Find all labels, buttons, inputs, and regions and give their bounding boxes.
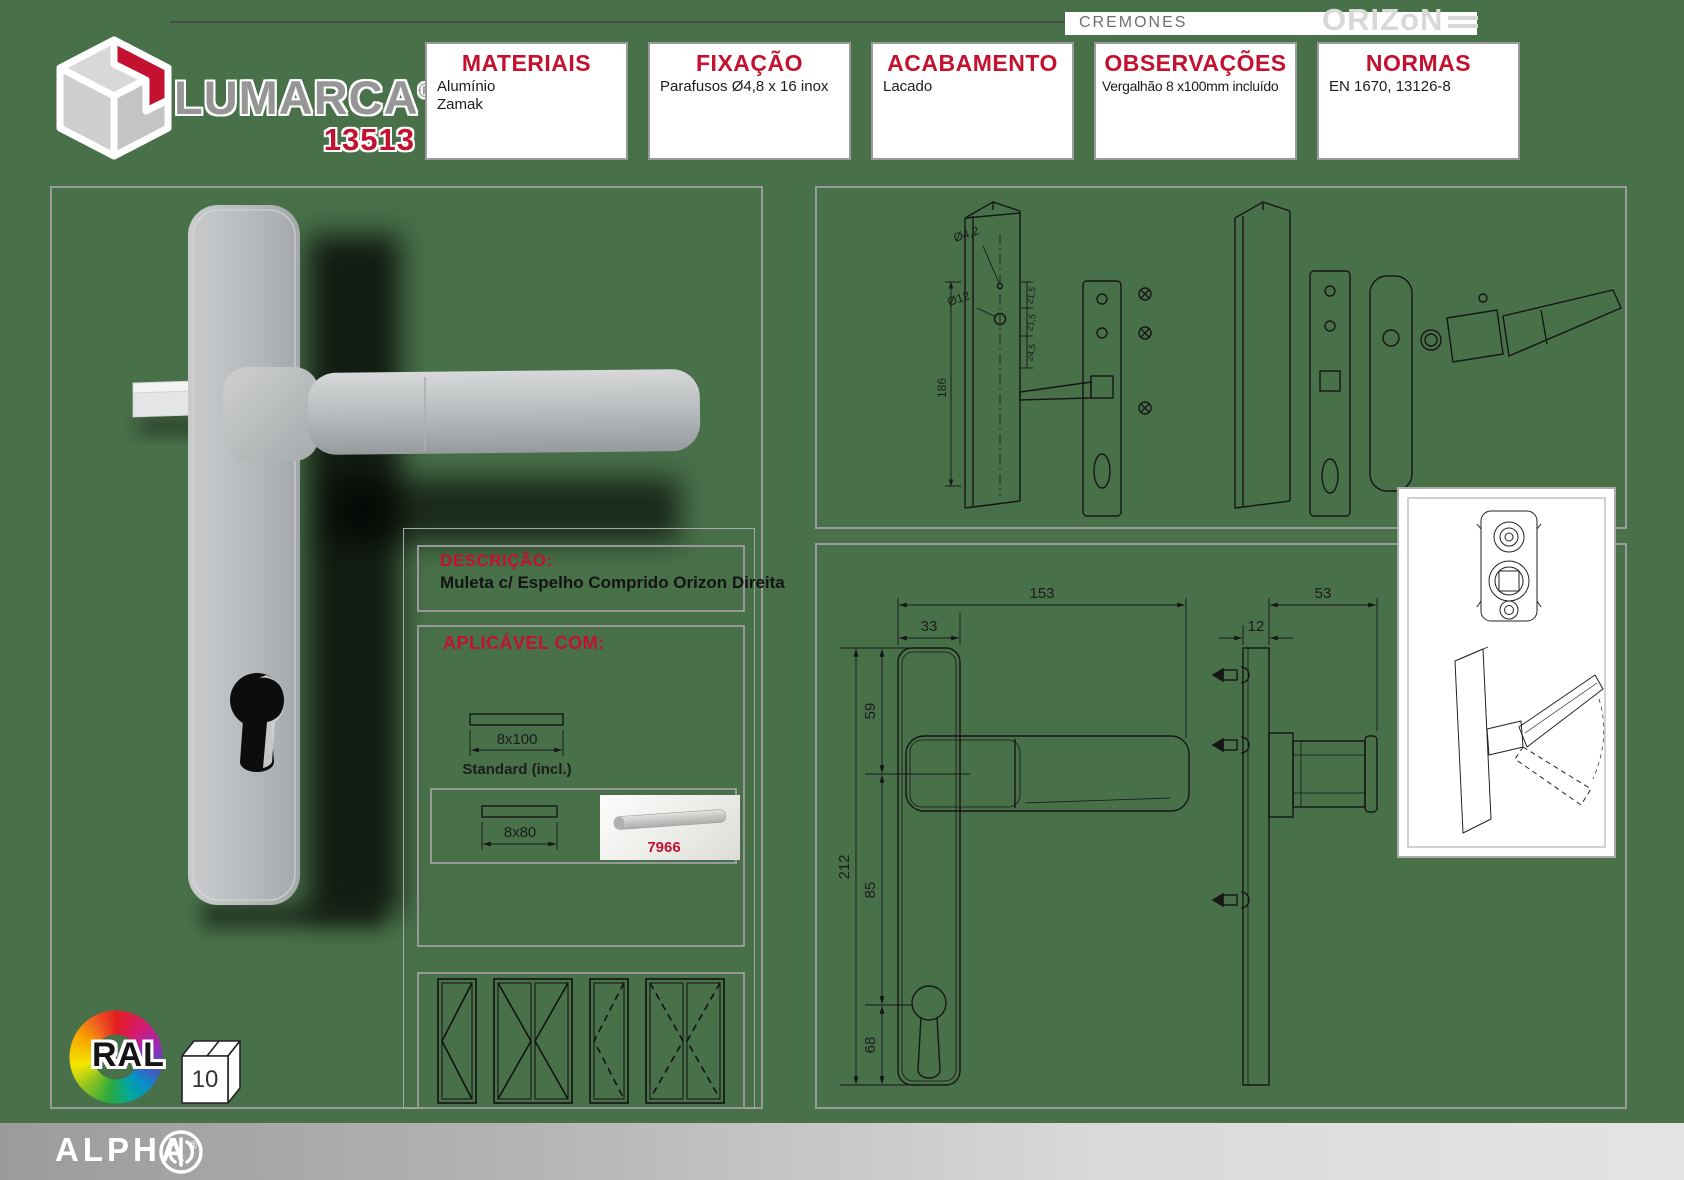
- door-single-solid-icon: [438, 979, 476, 1103]
- rod-optional-dim: 8x80: [504, 824, 537, 841]
- lock-strip-right: [1310, 271, 1350, 516]
- dim-label-hole-big: Ø12: [946, 288, 972, 308]
- ral-label: RAL: [92, 1036, 165, 1075]
- dim-label-seg1: 21,5: [1024, 286, 1037, 305]
- handle-isometric-drawing: [1399, 489, 1614, 856]
- aplicavel-label: APLICÁVEL COM:: [443, 633, 605, 654]
- mechanism-detail: [1477, 511, 1541, 621]
- door-double-dashed-icon: [646, 979, 724, 1103]
- dim-front-top-offset: 59: [862, 703, 879, 720]
- brand-wordmark: LUMARCA®: [174, 70, 434, 125]
- spindle: [133, 381, 196, 417]
- info-box-materiais: MATERIAIS Alumínio Zamak: [425, 42, 628, 160]
- rod-optional-photo-image: 7966: [600, 795, 740, 860]
- dim-front-width: 153: [1029, 585, 1054, 602]
- rod-optional-photo: 7966: [600, 795, 740, 860]
- header-rule: [170, 21, 1067, 23]
- front-dims: [840, 598, 1186, 1085]
- door-double-solid-icon: [494, 979, 572, 1103]
- orizon-logo: ORIZoN: [1322, 2, 1443, 38]
- plate-shadow: [308, 235, 400, 915]
- info-box-title: MATERIAIS: [427, 50, 626, 77]
- rod-optional-code: 7966: [647, 839, 680, 856]
- cylinder-ring: [1421, 330, 1441, 350]
- exploded-assembly-drawing: Ø4,2 Ø12 186 21,5 21,5 24,5: [815, 186, 1627, 529]
- lumarca-cube-icon: [50, 26, 178, 164]
- dim-label-seg3: 24,5: [1024, 343, 1037, 362]
- info-box-line: Alumínio: [427, 77, 626, 95]
- brand-name: LUMARCA: [174, 71, 419, 124]
- info-box-title: ACABAMENTO: [873, 50, 1072, 77]
- info-box-line: EN 1670, 13126-8: [1319, 77, 1518, 95]
- side-view: 53 12: [1213, 585, 1377, 1085]
- package-qty: 10: [192, 1066, 219, 1093]
- profile-column-right: [1235, 202, 1290, 508]
- info-box-line: Vergalhão 8 x100mm incluído: [1096, 77, 1295, 94]
- dim-side-thickness: 12: [1248, 618, 1265, 635]
- handle-iso: [1447, 290, 1621, 362]
- info-box-title: NORMAS: [1319, 50, 1518, 77]
- door-application-icons: [437, 978, 725, 1104]
- info-box-acabamento: ACABAMENTO Lacado: [871, 42, 1074, 160]
- handle-hub: [223, 367, 319, 461]
- rod-standard-note: Standard (incl.): [462, 761, 571, 778]
- handle-rotation-view: [1455, 647, 1604, 833]
- info-box-title: OBSERVAÇÕES: [1096, 50, 1295, 77]
- info-box-observacoes: OBSERVAÇÕES Vergalhão 8 x100mm incluído: [1094, 42, 1297, 160]
- handle-isometric-inset: [1397, 487, 1616, 858]
- dim-front-plate-width: 33: [921, 618, 938, 635]
- hole-leaders: [977, 246, 999, 317]
- front-view: 153 33 59 85 68 212: [836, 585, 1189, 1085]
- screws: [1139, 288, 1151, 414]
- product-code: 13513: [247, 122, 415, 158]
- profile-column-left: [965, 202, 1020, 508]
- package-box-icon: 10: [178, 1028, 250, 1108]
- rod-standard-dim: 8x100: [497, 731, 538, 748]
- alpha-logo-icon: [158, 1129, 204, 1175]
- info-box-fixacao: FIXAÇÃO Parafusos Ø4,8 x 16 inox: [648, 42, 851, 160]
- description-label: DESCRIÇÃO:: [440, 551, 553, 571]
- door-single-dashed-icon: [590, 979, 628, 1103]
- footer-bar: ALPHA®: [0, 1123, 1684, 1180]
- dim-front-height: 212: [836, 854, 853, 879]
- info-box-line: Zamak: [427, 95, 626, 113]
- category-label: CREMONES: [1079, 14, 1187, 32]
- dim-side-depth: 53: [1315, 585, 1332, 602]
- orizon-logo-line: [1448, 16, 1478, 20]
- info-box-title: FIXAÇÃO: [650, 50, 849, 77]
- backplate-iso: [1370, 276, 1412, 491]
- info-box-line: Parafusos Ø4,8 x 16 inox: [650, 77, 849, 95]
- info-box-line: Lacado: [873, 77, 1072, 95]
- handle-lever: [308, 369, 701, 455]
- rod-standard-diagram: 8x100 Standard (incl.): [440, 702, 730, 784]
- dim-front-bottom: 68: [862, 1037, 879, 1054]
- dim-label-hole-small: Ø4,2: [952, 223, 981, 244]
- dim-label-seg2: 21,5: [1024, 313, 1037, 332]
- backplate: [188, 205, 300, 905]
- dim-front-mid: 85: [862, 882, 879, 899]
- dim-label-height: 186: [935, 378, 949, 398]
- aplicavel-box: [417, 625, 745, 947]
- rod-optional-diagram: 8x80: [442, 800, 602, 856]
- description-text: Muleta c/ Espelho Comprido Orizon Direit…: [440, 573, 785, 593]
- plate-bottom-shadow: [202, 902, 382, 928]
- info-box-normas: NORMAS EN 1670, 13126-8: [1317, 42, 1520, 160]
- datasheet-page: CREMONES ORIZoN LUMARCA® 13513 MATERIAIS…: [0, 0, 1684, 1180]
- orizon-logo-line: [1448, 24, 1478, 28]
